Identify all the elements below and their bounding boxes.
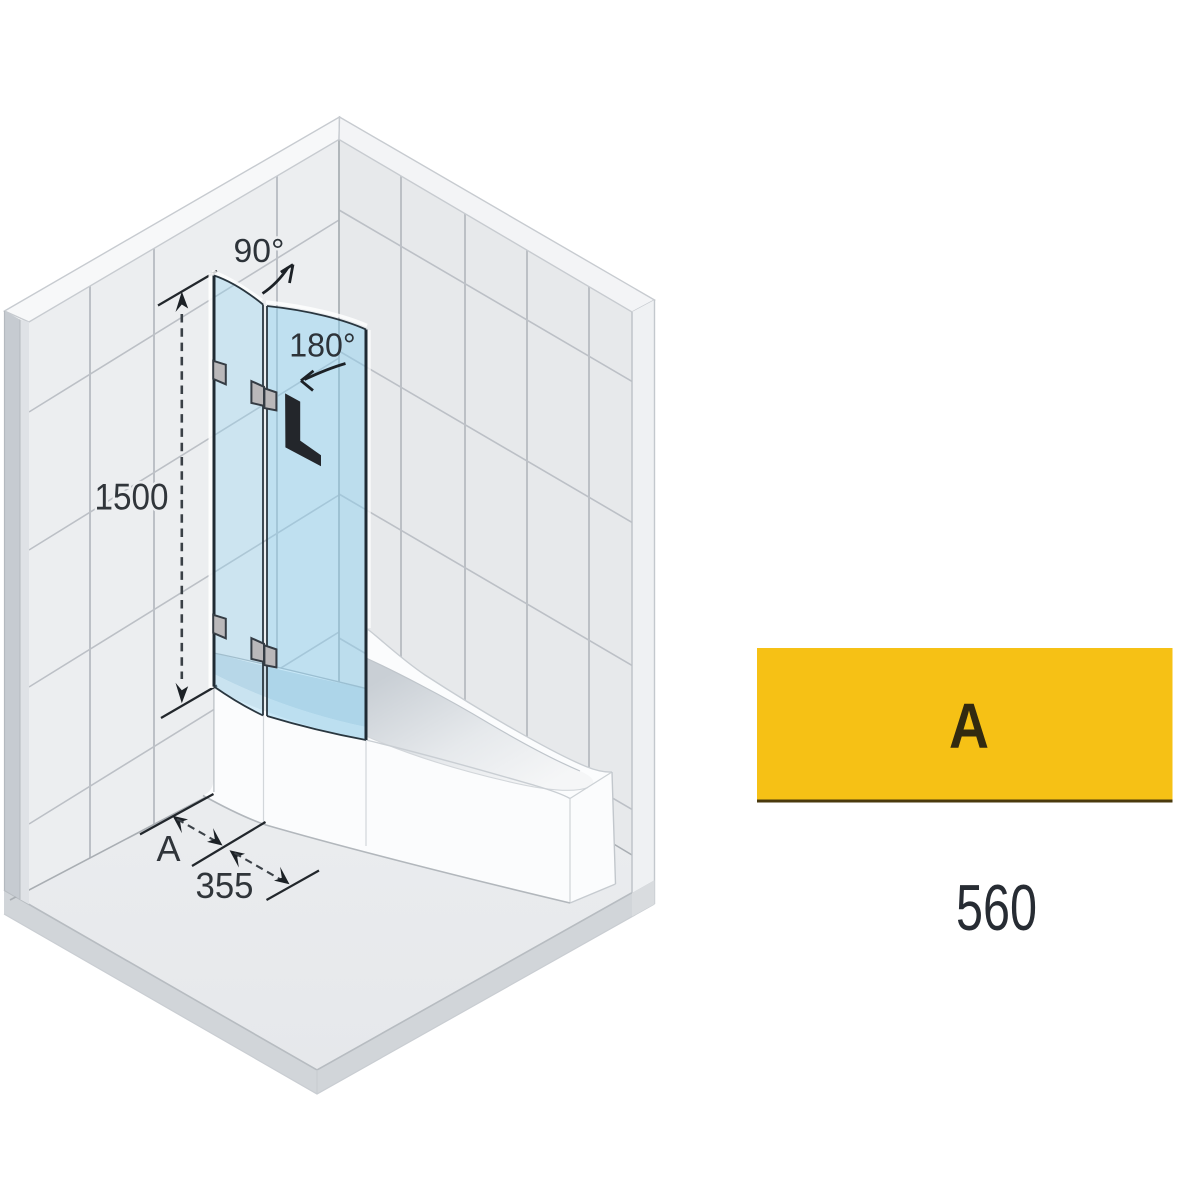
svg-text:90°: 90° — [234, 232, 285, 269]
svg-text:A: A — [949, 690, 989, 762]
svg-text:A: A — [156, 828, 180, 869]
svg-text:180°: 180° — [289, 327, 356, 364]
svg-text:1500: 1500 — [95, 477, 169, 518]
svg-text:355: 355 — [196, 865, 254, 906]
svg-text:560: 560 — [956, 871, 1037, 944]
